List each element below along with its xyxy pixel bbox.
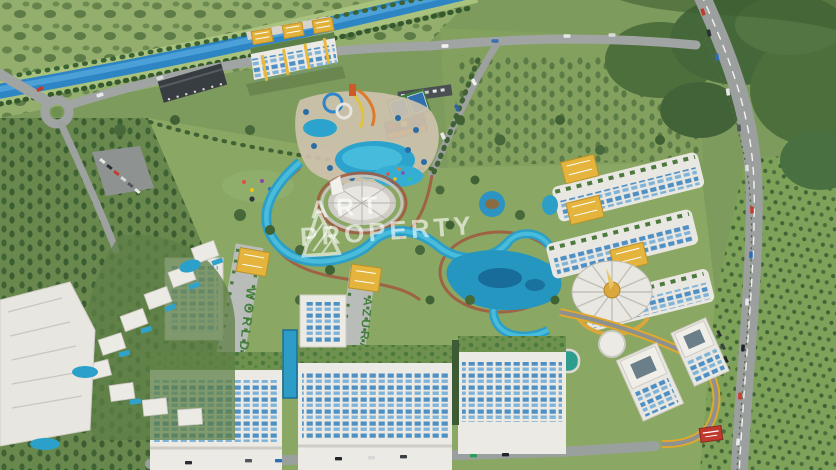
entrance-sign-red [699, 426, 723, 443]
amphitheater [322, 176, 402, 230]
island-pond [479, 191, 505, 217]
scene-canvas: WORLD AZURA [0, 0, 836, 470]
aerial-render-scene: WORLD AZURA [0, 0, 836, 470]
